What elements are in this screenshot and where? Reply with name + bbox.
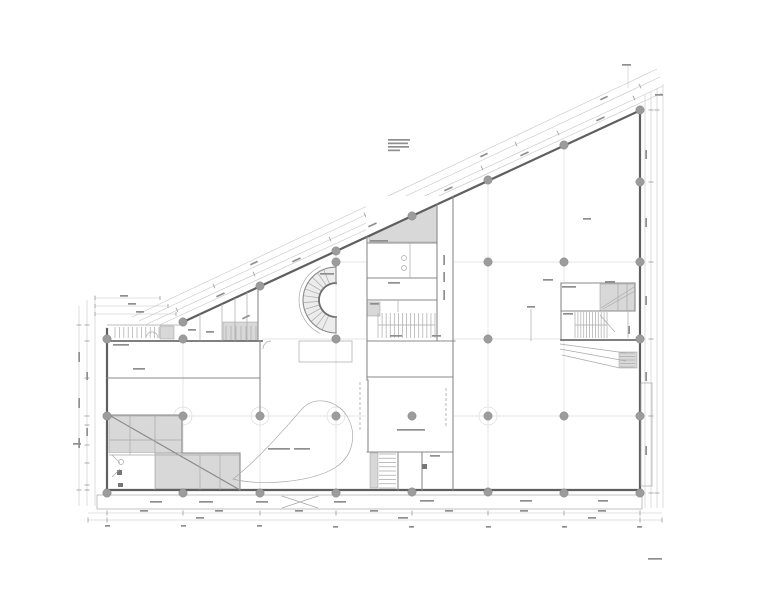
- micro-text: [637, 526, 642, 528]
- exterior-walkway-band: [97, 495, 642, 509]
- micro-text: [320, 273, 334, 275]
- micro-text: [250, 261, 258, 266]
- micro-text: [409, 526, 414, 528]
- hatched-room: [155, 453, 240, 489]
- micro-text: [520, 510, 528, 512]
- micro-text: [78, 438, 80, 448]
- micro-text: [128, 303, 136, 305]
- micro-text: [645, 150, 647, 159]
- micro-text: [628, 326, 630, 334]
- micro-text: [527, 306, 535, 308]
- column-dot: [332, 412, 340, 420]
- void-edge: [560, 344, 626, 353]
- column-dot: [560, 489, 568, 497]
- micro-text: [645, 296, 647, 305]
- column-dot: [332, 489, 340, 497]
- column-dot: [179, 412, 187, 420]
- micro-text: [334, 501, 346, 503]
- column-dot: [484, 335, 492, 343]
- micro-text: [150, 501, 162, 503]
- micro-text: [443, 255, 445, 265]
- general-note-line: [388, 146, 409, 148]
- floor-plan-canvas: [0, 0, 768, 598]
- door-swing: [263, 341, 271, 349]
- micro-text: [583, 218, 591, 220]
- column-dot: [560, 412, 568, 420]
- micro-text: [596, 116, 605, 121]
- column-dot: [560, 258, 568, 266]
- micro-text: [140, 510, 148, 512]
- hatched-room: [160, 326, 174, 339]
- micro-text: [196, 517, 204, 519]
- micro-text: [600, 96, 608, 101]
- micro-text: [398, 517, 408, 519]
- micro-text: [443, 272, 445, 282]
- floor-plan-drawing: [0, 0, 768, 598]
- micro-text: [598, 500, 608, 502]
- column-dot: [636, 178, 644, 186]
- column-dot: [484, 488, 492, 496]
- dim-tick: [253, 272, 255, 277]
- column-dot: [484, 412, 492, 420]
- micro-text: [388, 282, 400, 284]
- micro-text: [486, 526, 491, 528]
- column-dot: [332, 247, 340, 255]
- micro-text: [136, 311, 144, 313]
- hatched-strip: [370, 453, 378, 488]
- fixture: [117, 470, 122, 475]
- micro-text: [257, 525, 262, 527]
- micro-text: [86, 428, 88, 436]
- column-dot: [636, 412, 644, 420]
- micro-text: [543, 279, 553, 281]
- column-dot: [408, 412, 416, 420]
- general-note-line: [388, 139, 410, 141]
- micro-text: [295, 510, 303, 512]
- micro-text: [520, 151, 529, 156]
- micro-text: [113, 344, 129, 346]
- micro-text: [370, 510, 378, 512]
- micro-text: [86, 372, 88, 380]
- column-dot: [636, 106, 644, 114]
- micro-text: [370, 303, 379, 305]
- micro-text: [563, 313, 573, 315]
- general-note-line: [388, 143, 408, 145]
- micro-text: [181, 525, 186, 527]
- micro-text: [390, 335, 402, 337]
- micro-text: [215, 510, 223, 512]
- micro-text: [206, 331, 214, 333]
- column-dot: [179, 335, 187, 343]
- micro-text: [78, 398, 80, 408]
- void-edge: [562, 355, 620, 368]
- column-dot: [103, 335, 111, 343]
- micro-text: [443, 290, 445, 300]
- micro-text: [78, 352, 80, 362]
- column-dot: [179, 318, 187, 326]
- general-note-line: [388, 150, 400, 152]
- micro-text: [188, 329, 196, 331]
- micro-text: [645, 372, 647, 381]
- column-dot: [256, 282, 264, 290]
- column-dot: [636, 335, 644, 343]
- micro-text: [432, 335, 441, 337]
- micro-text: [480, 153, 488, 158]
- micro-text: [120, 295, 128, 297]
- void-edge: [560, 349, 626, 361]
- column-dot: [636, 489, 644, 497]
- fixture: [422, 464, 427, 469]
- scale-note: [648, 558, 662, 560]
- micro-text: [622, 64, 631, 66]
- column-dot: [179, 489, 187, 497]
- micro-text: [397, 429, 425, 431]
- column-dot: [332, 335, 340, 343]
- column-dot: [560, 141, 568, 149]
- micro-text: [333, 526, 338, 528]
- micro-text: [562, 526, 567, 528]
- hatched-room: [223, 322, 258, 341]
- fixture: [118, 483, 123, 487]
- micro-text: [268, 448, 290, 450]
- exterior-ledge: [641, 383, 652, 486]
- column-dot: [636, 258, 644, 266]
- column-dot: [484, 176, 492, 184]
- micro-text: [256, 501, 268, 503]
- column-dot: [103, 412, 111, 420]
- micro-text: [520, 500, 532, 502]
- micro-text: [294, 448, 310, 450]
- micro-text: [444, 186, 453, 191]
- micro-text: [445, 510, 453, 512]
- micro-text: [645, 446, 647, 455]
- micro-text: [588, 517, 596, 519]
- micro-text: [645, 218, 647, 227]
- micro-text: [562, 286, 576, 288]
- column-dot: [256, 489, 264, 497]
- column-dot: [408, 488, 416, 496]
- micro-text: [370, 240, 388, 242]
- micro-text: [105, 525, 110, 527]
- micro-text: [430, 455, 440, 457]
- micro-text: [598, 510, 606, 512]
- micro-text: [199, 501, 213, 503]
- column-dot: [332, 258, 340, 266]
- column-dot: [256, 412, 264, 420]
- column-dot: [408, 212, 416, 220]
- micro-text: [655, 94, 663, 96]
- column-dot: [484, 258, 492, 266]
- column-dot: [103, 489, 111, 497]
- room-outline: [299, 341, 352, 362]
- micro-text: [420, 500, 434, 502]
- wc-room: [109, 453, 155, 489]
- micro-text: [133, 368, 145, 370]
- micro-text: [605, 281, 615, 283]
